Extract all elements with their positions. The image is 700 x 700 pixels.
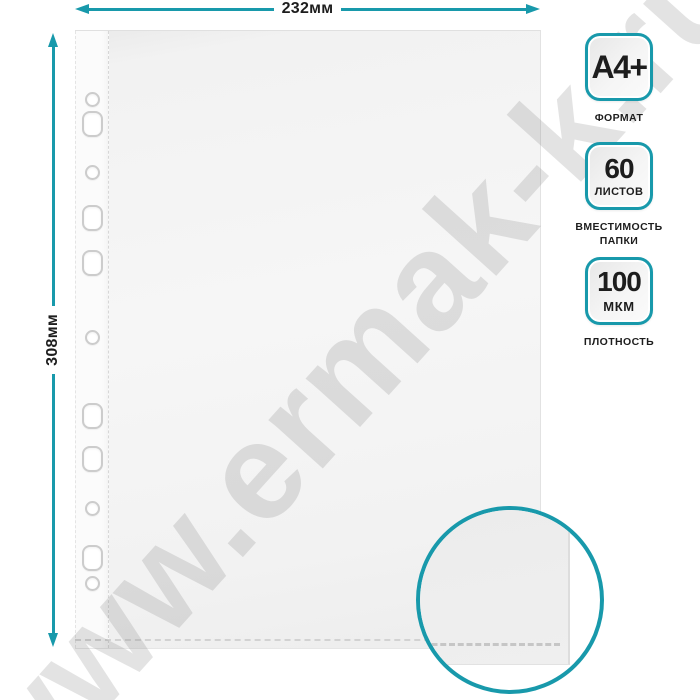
spec-caption: ФОРМАТ	[595, 111, 644, 125]
spec-caption: ВМЕСТИМОСТЬ ПАПКИ	[575, 220, 662, 248]
spec-badge-box: A4+	[585, 33, 653, 101]
width-dimension-label: 232мм	[274, 0, 342, 18]
punch-hole	[85, 501, 100, 516]
spec-value: 100	[597, 268, 641, 296]
width-dimension-arrow: 232мм	[75, 2, 540, 16]
spec-value: A4+	[591, 51, 646, 83]
punch-hole	[82, 545, 103, 571]
height-dimension-arrow: 308мм	[45, 33, 61, 647]
arrow-up-head-icon	[48, 33, 58, 47]
spec-badge-thickness: 100 МКМ ПЛОТНОСТЬ	[553, 257, 685, 349]
punch-hole	[85, 165, 100, 180]
magnifier-circle	[416, 506, 604, 694]
magnified-sheet-corner	[416, 506, 570, 665]
spec-badge-box: 60 ЛИСТОВ	[585, 142, 653, 210]
punch-hole	[82, 403, 103, 429]
product-image: www.ermak-k.ru 232мм 308мм A4+ ФОРМАТ 60…	[0, 0, 700, 700]
arrow-line	[52, 374, 55, 633]
spec-badge-capacity: 60 ЛИСТОВ ВМЕСТИМОСТЬ ПАПКИ	[553, 142, 685, 248]
punch-hole	[82, 111, 103, 137]
spec-unit: МКМ	[603, 299, 634, 314]
punch-hole	[85, 576, 100, 591]
punch-hole	[85, 330, 100, 345]
spec-value: 60	[604, 155, 633, 183]
spec-badge-format: A4+ ФОРМАТ	[553, 33, 685, 125]
punch-hole	[85, 92, 100, 107]
spec-badge-box: 100 МКМ	[585, 257, 653, 325]
height-dimension-label: 308мм	[44, 306, 62, 374]
arrow-line	[89, 8, 274, 11]
arrow-line	[341, 8, 526, 11]
arrow-line	[52, 47, 55, 306]
magnified-weld-seam	[416, 643, 560, 646]
arrow-right-head-icon	[526, 4, 540, 14]
spec-caption: ПЛОТНОСТЬ	[584, 335, 654, 349]
punch-hole	[82, 446, 103, 472]
arrow-down-head-icon	[48, 633, 58, 647]
arrow-left-head-icon	[75, 4, 89, 14]
spec-caption-line: ВМЕСТИМОСТЬ	[575, 220, 662, 234]
punched-strip	[75, 31, 109, 648]
spec-caption-line: ПАПКИ	[575, 234, 662, 248]
spec-unit: ЛИСТОВ	[595, 186, 644, 198]
punch-hole	[82, 250, 103, 276]
punch-hole	[82, 205, 103, 231]
